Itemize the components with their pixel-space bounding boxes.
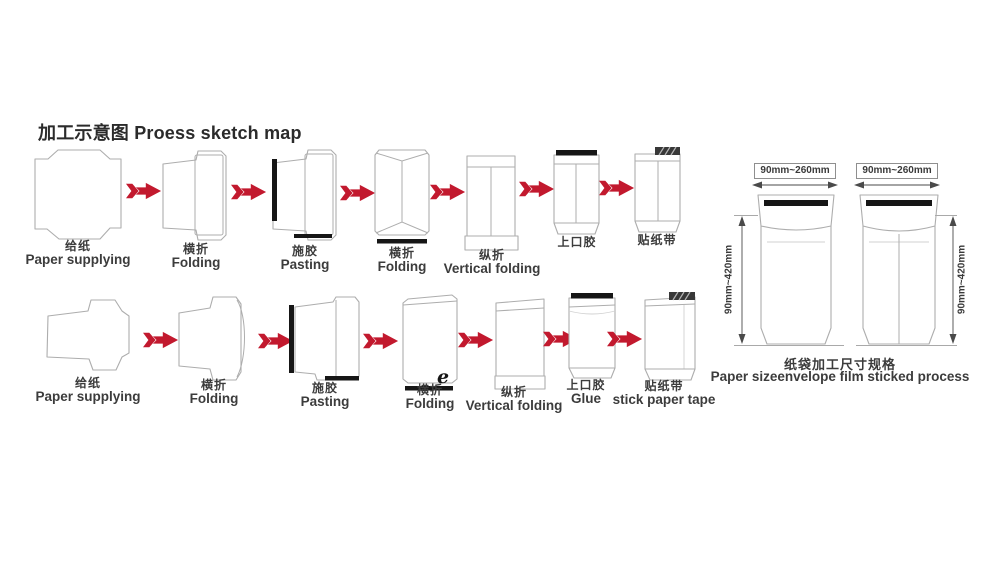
height-dimension-label: 90mm~420mm (957, 230, 968, 330)
shape-paper-blank (34, 149, 122, 240)
shape-pasting-1 (270, 148, 338, 244)
shape-top-glue-1 (551, 149, 602, 237)
step-label: 纵折 Vertical folding (417, 249, 567, 276)
process-arrow-icon (340, 183, 376, 203)
process-arrow-icon (599, 178, 635, 198)
size-panel-caption-en: Paper sizeenvelope film sticked process (700, 369, 980, 384)
width-dimension-arrow (854, 180, 940, 190)
process-arrow-icon (143, 330, 179, 350)
process-sketch-map: 加工示意图 Proess sketch map 给纸 Paper supplyi… (0, 0, 1000, 565)
process-arrow-icon (363, 331, 399, 351)
process-arrow-icon (519, 179, 555, 199)
process-arrow-icon (607, 329, 643, 349)
shape-folding-2: e (401, 292, 459, 392)
shape-paper-tape-1 (631, 147, 683, 235)
height-dimension-label: 90mm~420mm (724, 230, 735, 330)
page-title-en: Proess sketch map (134, 123, 301, 143)
envelope-size-diagram-2 (858, 192, 940, 348)
extension-line (856, 345, 957, 346)
step-label: 贴纸带 stick paper tape (589, 380, 739, 407)
shape-folding-1 (162, 149, 229, 242)
width-dimension-arrow (752, 180, 838, 190)
height-dimension-arrow (737, 216, 747, 344)
step-label: 贴纸带 (582, 234, 732, 247)
shape-folding-2 (374, 146, 430, 246)
extension-line (734, 345, 844, 346)
shape-paper-tape-1 (642, 292, 698, 386)
page-title: 加工示意图 Proess sketch map (38, 119, 302, 145)
width-dimension-label: 90mm~260mm (754, 163, 836, 179)
process-arrow-icon (126, 181, 162, 201)
shape-pasting-1 (287, 296, 362, 384)
shape-folding-1 (177, 294, 254, 384)
shape-paper-blank (44, 296, 132, 378)
envelope-size-diagram-1 (756, 192, 836, 348)
width-dimension-label: 90mm~260mm (856, 163, 938, 179)
process-arrow-icon (458, 330, 494, 350)
process-arrow-icon (430, 182, 466, 202)
page-title-cn: 加工示意图 (38, 123, 129, 143)
process-arrow-icon (231, 182, 267, 202)
